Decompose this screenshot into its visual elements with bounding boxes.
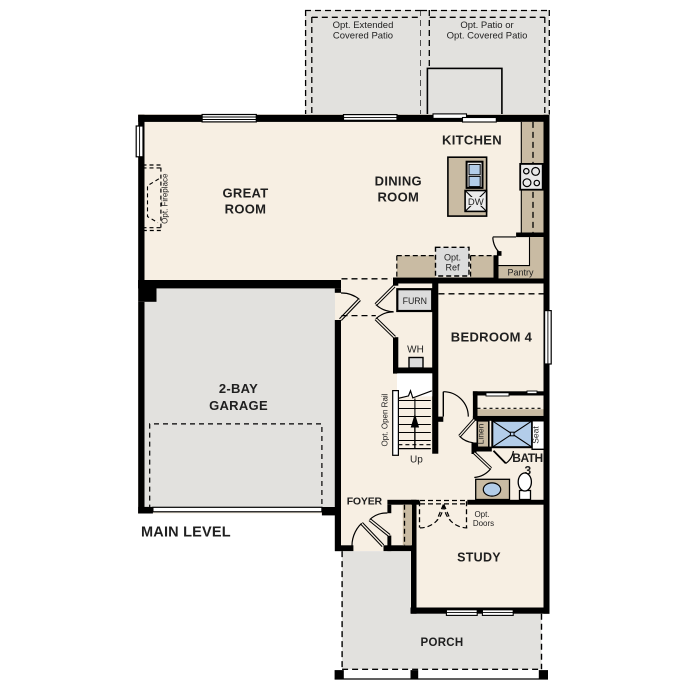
svg-text:DW: DW [468, 197, 484, 208]
svg-text:Opt. Extended: Opt. Extended [333, 20, 394, 31]
svg-text:WH: WH [407, 345, 424, 356]
svg-text:KITCHEN: KITCHEN [442, 133, 502, 148]
svg-text:Ref: Ref [445, 263, 460, 273]
svg-text:GARAGE: GARAGE [209, 398, 268, 413]
svg-text:Covered Patio: Covered Patio [333, 31, 393, 42]
svg-text:Opt. Fireplace: Opt. Fireplace [161, 173, 170, 224]
svg-text:Seat: Seat [531, 426, 541, 444]
svg-text:2-BAY: 2-BAY [219, 381, 258, 396]
svg-text:Opt.: Opt. [444, 253, 461, 263]
svg-text:GREAT: GREAT [222, 185, 268, 200]
svg-text:Opt. Open Rail: Opt. Open Rail [381, 393, 390, 446]
svg-text:STUDY: STUDY [457, 551, 501, 565]
svg-text:Pantry: Pantry [507, 268, 534, 278]
svg-text:PORCH: PORCH [420, 637, 463, 649]
svg-text:DINING: DINING [375, 174, 422, 189]
svg-text:ROOM: ROOM [377, 190, 419, 205]
svg-text:Linen: Linen [475, 423, 485, 444]
svg-text:BEDROOM 4: BEDROOM 4 [451, 330, 533, 345]
svg-text:Opt. Covered Patio: Opt. Covered Patio [447, 31, 528, 42]
svg-text:FOYER: FOYER [347, 496, 383, 508]
svg-text:FURN: FURN [403, 296, 427, 306]
svg-text:ROOM: ROOM [225, 202, 267, 217]
svg-text:MAIN LEVEL: MAIN LEVEL [141, 525, 231, 541]
svg-text:Opt. Patio or: Opt. Patio or [460, 20, 513, 31]
svg-text:Doors: Doors [473, 519, 494, 528]
svg-text:Up: Up [410, 455, 423, 466]
